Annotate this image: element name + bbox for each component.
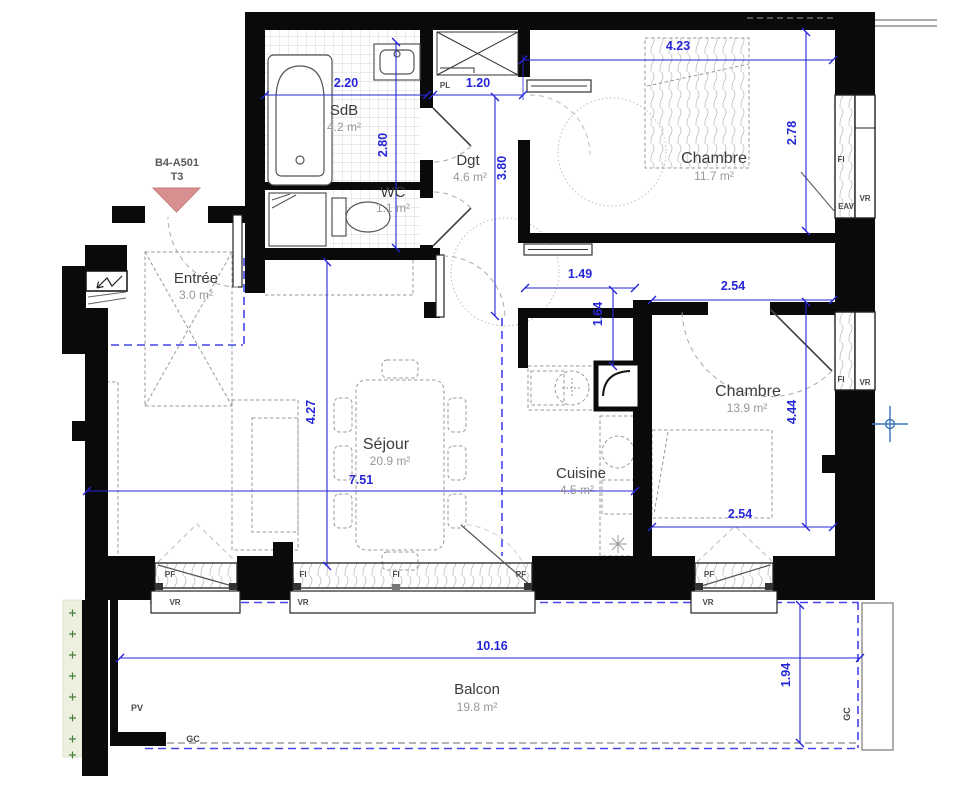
- lot-id: B4-A501: [155, 157, 199, 169]
- dim-corr-w: 1.49: [568, 267, 592, 281]
- room-balcon-label: Balcon: [454, 681, 500, 698]
- hatch-lines: [88, 292, 126, 304]
- sdb-door-leaf: [433, 108, 471, 146]
- sofa: [232, 400, 298, 550]
- room-sejour-area: 20.9 m²: [370, 454, 411, 468]
- balcony-separator: [862, 603, 893, 750]
- room-sdb-label: SdB: [330, 102, 358, 119]
- room-dgt-label: Dgt: [456, 152, 480, 169]
- pf-tag: PF: [516, 570, 526, 579]
- dim-balcon-w: 10.16: [476, 639, 507, 653]
- vr-tag: VR: [859, 194, 870, 203]
- fi-tag: FI: [299, 570, 306, 579]
- lot-type: T3: [171, 171, 184, 183]
- chambre1-sliding-door-2: [524, 244, 592, 255]
- dgt-door-leaf: [436, 255, 444, 317]
- fi-tag: FI: [392, 570, 399, 579]
- entry-door-leaf: [233, 215, 242, 287]
- room-balcon-area: 19.8 m²: [457, 700, 498, 714]
- entry-closet: [437, 32, 518, 75]
- room-wc-area: 1.1 m²: [376, 201, 410, 215]
- dim-ch2-w-bottom: 2.54: [728, 507, 752, 521]
- toilet-tank: [332, 198, 346, 236]
- dim-sejour-h: 4.27: [304, 400, 318, 424]
- room-cuisine-area: 4.5 m²: [560, 483, 594, 497]
- gc-tag: GC: [186, 734, 200, 744]
- vent-symbol: [609, 535, 627, 553]
- room-chambre1-label: Chambre: [681, 150, 747, 167]
- dim-sejour-w: 7.51: [349, 473, 373, 487]
- window-chambre2: FI VR: [835, 312, 875, 390]
- vr-tag: VR: [169, 598, 180, 607]
- floorplan-drawing: FI EAV VR FI VR PF VR: [0, 0, 963, 800]
- bed-chambre2: [652, 430, 772, 518]
- wc-door-swing: [433, 192, 471, 208]
- fi-tag: FI: [837, 155, 844, 164]
- window-chambre1: FI EAV VR: [801, 95, 875, 218]
- dim-ch1-w: 4.23: [666, 39, 690, 53]
- bed-chambre1: [645, 38, 749, 168]
- pl-tag: PL: [440, 81, 450, 90]
- dim-ch1-h: 2.78: [785, 121, 799, 145]
- vr-tag: VR: [297, 598, 308, 607]
- dgt-door-swing: [443, 256, 505, 318]
- room-sdb-area: 4.2 m²: [327, 120, 361, 134]
- window-sejour-left: PF VR: [151, 524, 240, 613]
- room-entree-label: Entrée: [174, 270, 218, 287]
- room-entree-area: 3.0 m²: [179, 288, 213, 302]
- dim-balcon-h: 1.94: [779, 663, 793, 687]
- vr-tag: VR: [702, 598, 713, 607]
- room-chambre2-label: Chambre: [715, 383, 781, 400]
- survey-crosshair-icon: [872, 406, 908, 442]
- dim-ch2-h: 4.44: [785, 400, 799, 424]
- pf-tag: PF: [165, 570, 175, 579]
- chambre1-sliding-door: [527, 80, 591, 155]
- dim-sdb-h: 2.80: [376, 133, 390, 157]
- lot-triangle-icon: [153, 188, 200, 212]
- room-dgt-area: 4.6 m²: [453, 170, 487, 184]
- wc-door-leaf: [433, 208, 471, 246]
- floorplan-page: FI EAV VR FI VR PF VR: [0, 0, 963, 800]
- dim-ch2-w-top: 2.54: [721, 279, 745, 293]
- duct-box: [86, 271, 127, 304]
- washing-machine: [269, 193, 326, 246]
- room-wc-label: WC: [381, 184, 406, 201]
- kitchen-shaft: [596, 363, 640, 409]
- dim-dgt-h: 3.80: [495, 156, 509, 180]
- fi-tag: FI: [837, 375, 844, 384]
- dim-dgt-w: 1.20: [466, 76, 490, 90]
- dim-sdb-w: 2.20: [334, 76, 358, 90]
- vr-tag: VR: [859, 378, 870, 387]
- pv-tag: PV: [131, 703, 143, 713]
- window-chambre2-balcony: PF VR: [691, 526, 777, 613]
- room-cuisine-label: Cuisine: [556, 465, 606, 482]
- room-chambre2-area: 13.9 m²: [727, 401, 768, 415]
- eav-tag: EAV: [838, 202, 855, 211]
- gc-tag-right: GC: [842, 707, 852, 721]
- pf-tag: PF: [704, 570, 714, 579]
- room-chambre1-area: 11.7 m²: [694, 169, 734, 183]
- room-sejour-label: Séjour: [363, 436, 410, 453]
- lot-marker: B4-A501 T3: [153, 157, 200, 212]
- chambre2-door-leaf: [770, 309, 832, 371]
- bathtub: [268, 55, 332, 185]
- dim-corr-h: 1.64: [591, 302, 605, 326]
